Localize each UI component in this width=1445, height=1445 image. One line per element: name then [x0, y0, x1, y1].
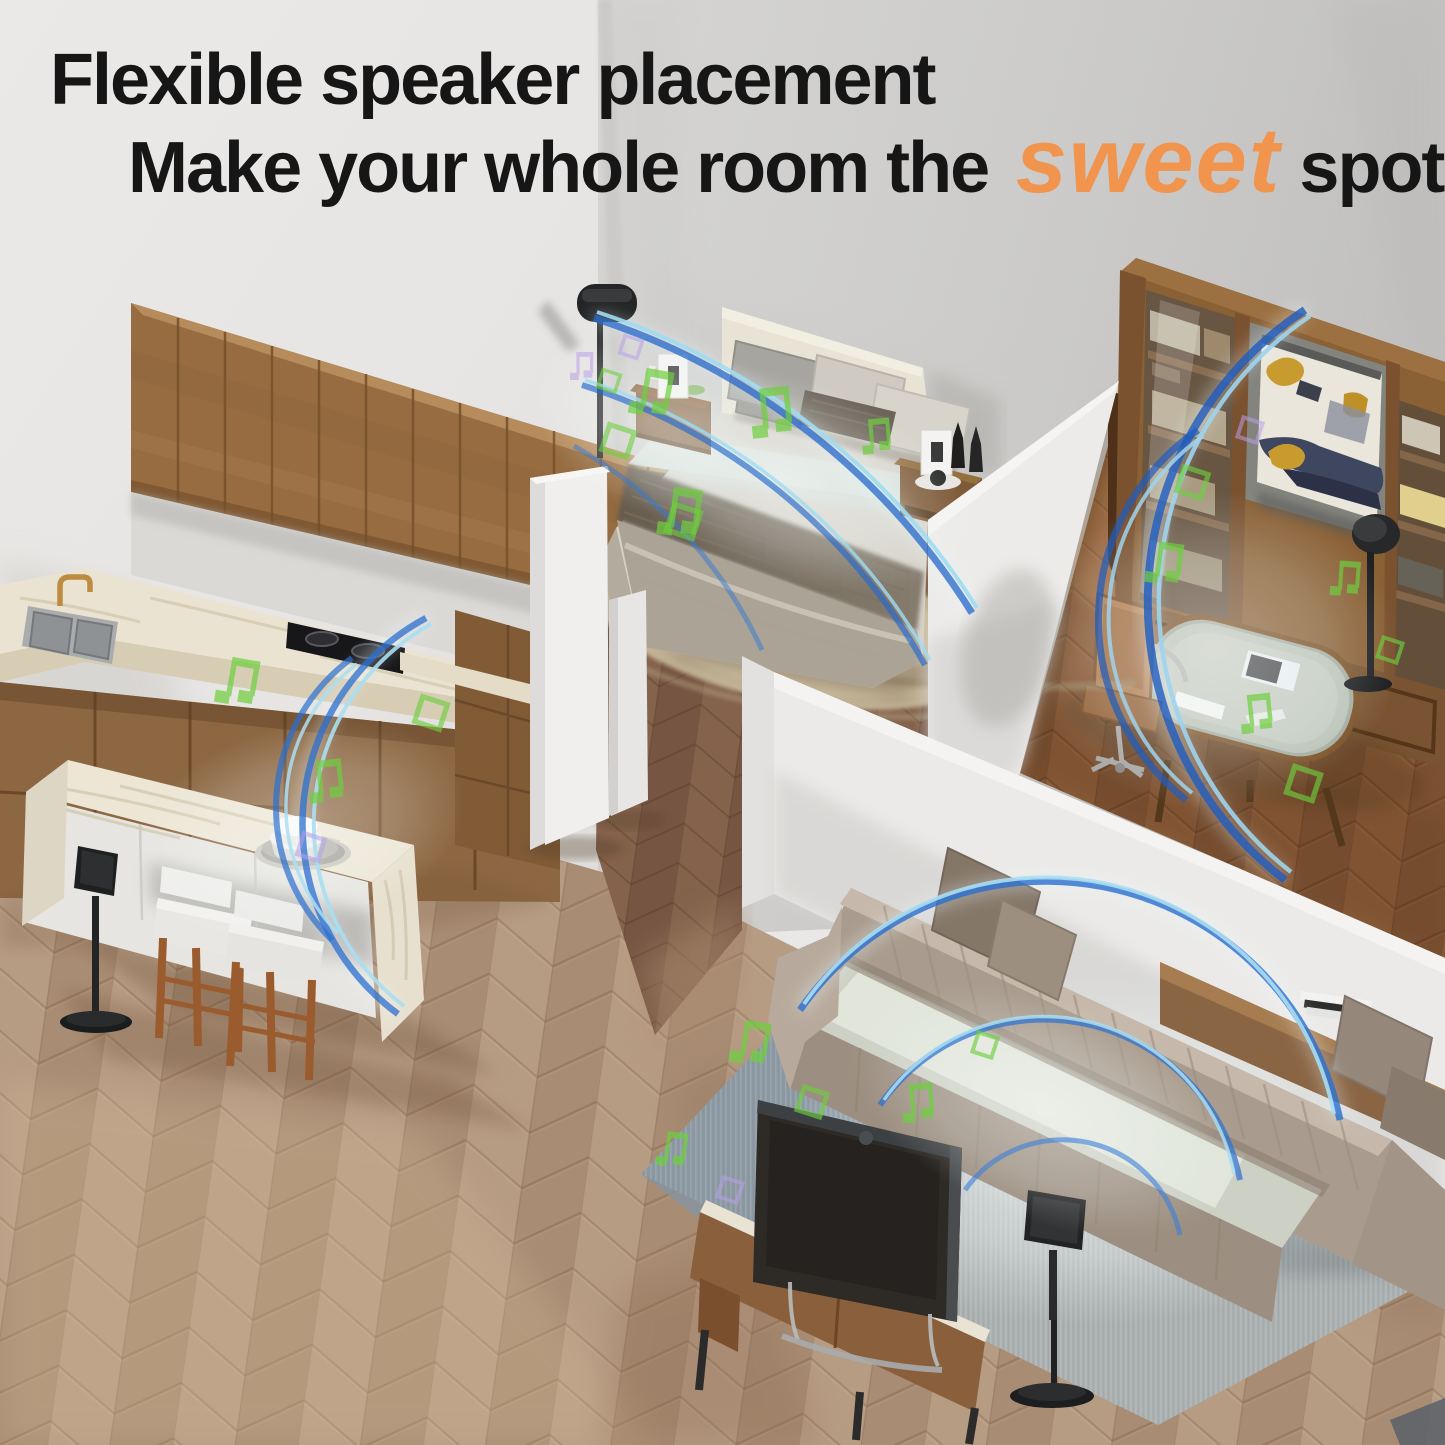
svg-text:Flexible speaker placement: Flexible speaker placement — [50, 40, 936, 120]
